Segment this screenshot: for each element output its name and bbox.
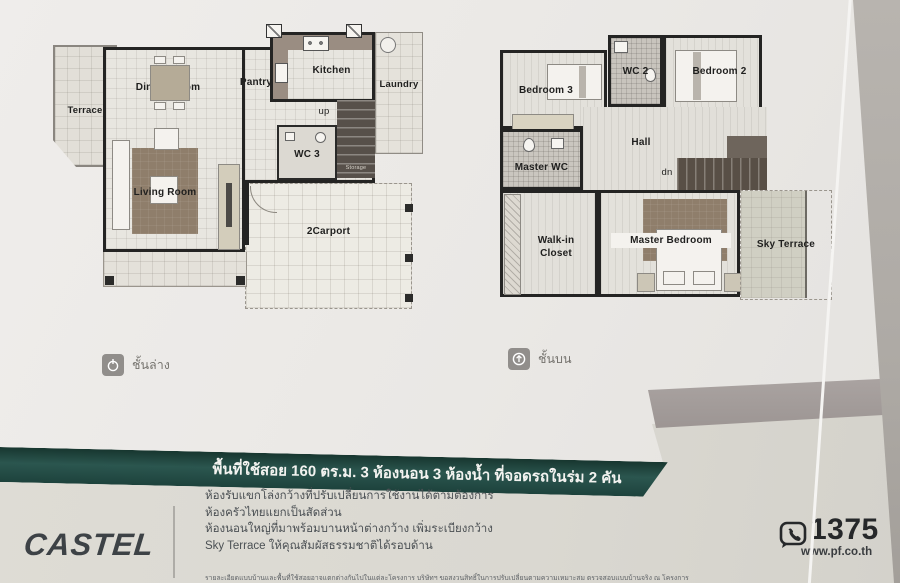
- walkway-strip: [103, 252, 247, 287]
- tv-cabinet: [218, 164, 240, 250]
- tv-icon: [226, 183, 232, 227]
- dining-table: [150, 65, 190, 101]
- floor-lower-caption: ชั้นล่าง: [132, 357, 170, 373]
- laundry-tub-icon: [380, 37, 396, 53]
- armchair: [154, 128, 179, 150]
- basin-icon: [285, 132, 295, 141]
- room-label-master-wc: Master WC: [503, 162, 580, 174]
- room-label-wc2: WC 2: [611, 66, 660, 78]
- brochure-photo: Terrace Kitchen Laundry Storage up Pantr…: [0, 0, 900, 583]
- room-laundry: Laundry: [375, 32, 423, 154]
- room-carport: 2Carport: [245, 183, 412, 309]
- carport-column: [405, 294, 413, 302]
- room-label-hall: Hall: [621, 137, 661, 149]
- carport-door-arc: [250, 186, 277, 213]
- feature-item: ห้องนอนใหญ่ที่มาพร้อมบานหน้าต่างกว้าง เพ…: [205, 521, 675, 538]
- stove-icon: [303, 36, 329, 51]
- room-master-bedroom: Master Bedroom: [598, 190, 740, 297]
- dining-chair: [154, 102, 166, 110]
- dining-chair: [173, 102, 185, 110]
- floor-upper-icon: [508, 348, 530, 370]
- basin-icon: [551, 138, 564, 149]
- room-label-sky-terrace: Sky Terrace: [733, 239, 839, 251]
- disclaimer-text: รายละเอียดแบบบ้านและพื้นที่ใช้สอยอาจแตกต…: [205, 572, 805, 583]
- carport-column: [405, 254, 413, 262]
- room-label-walkin-2: Closet: [517, 248, 595, 260]
- dining-chair: [173, 56, 185, 64]
- nightstand: [637, 273, 655, 292]
- label-plate: Master Bedroom: [611, 233, 731, 248]
- floorplan-upper: Bedroom 3 WC 2 Bedroom 2 Hall dn Master …: [488, 22, 836, 314]
- storage-label: Storage: [337, 162, 375, 174]
- sofa: [112, 140, 130, 230]
- room-label-master-bedroom: Master Bedroom: [611, 235, 731, 247]
- room-label-pantry: Pantry: [228, 77, 284, 89]
- toilet-icon: [523, 138, 535, 152]
- toilet-icon: [315, 132, 326, 143]
- bed-pillow: [663, 271, 685, 285]
- room-label-living: Living Room: [120, 187, 210, 199]
- feature-item: ห้องครัวไทยแยกเป็นสัดส่วน: [205, 505, 675, 522]
- dn-label: dn: [655, 167, 679, 179]
- window-box: [266, 24, 282, 38]
- feature-list: ห้องรับแขกโล่งกว้างที่ปรับเปลี่ยนการใช้ง…: [205, 488, 675, 554]
- post: [105, 276, 114, 285]
- basin-icon: [614, 41, 628, 53]
- stairs-landing: [727, 136, 767, 158]
- window-box: [346, 24, 362, 38]
- up-label: up: [312, 106, 336, 118]
- stairs-up: Storage: [337, 100, 375, 178]
- room-wc3: WC 3: [277, 125, 337, 180]
- room-label-carport: 2Carport: [246, 226, 411, 238]
- floor-upper-caption: ชั้นบน: [538, 351, 572, 367]
- wall-segment: [245, 183, 249, 245]
- stairs-down: [677, 158, 767, 190]
- brand-logo: CASTEL: [22, 527, 156, 563]
- room-label-walkin-1: Walk-in: [517, 235, 595, 247]
- footer-divider: [173, 506, 175, 578]
- floorplan-ground: Terrace Kitchen Laundry Storage up Pantr…: [50, 22, 425, 314]
- room-label-laundry: Laundry: [372, 79, 426, 91]
- feature-item: ห้องรับแขกโล่งกว้างที่ปรับเปลี่ยนการใช้ง…: [205, 488, 675, 505]
- post: [236, 276, 245, 285]
- room-walkin-closet: Walk-in Closet: [500, 190, 598, 297]
- room-master-wc: Master WC: [500, 129, 583, 190]
- phone-number: 1375: [810, 513, 879, 547]
- room-label-bedroom2: Bedroom 2: [680, 66, 759, 78]
- room-kitchen: Kitchen: [270, 32, 375, 102]
- carport-column: [405, 204, 413, 212]
- room-sky-terrace: Sky Terrace: [740, 190, 832, 300]
- feature-item: Sky Terrace ให้คุณสัมผัสธรรมชาติได้รอบด้…: [205, 538, 675, 555]
- floor-lower-icon: [102, 354, 124, 376]
- room-label-kitchen: Kitchen: [291, 65, 372, 77]
- bed-pillow: [693, 271, 715, 285]
- room-label-wc3: WC 3: [279, 149, 335, 161]
- dining-chair: [154, 56, 166, 64]
- room-wc2: WC 2: [608, 35, 663, 107]
- room-label-bedroom3: Bedroom 3: [503, 85, 589, 97]
